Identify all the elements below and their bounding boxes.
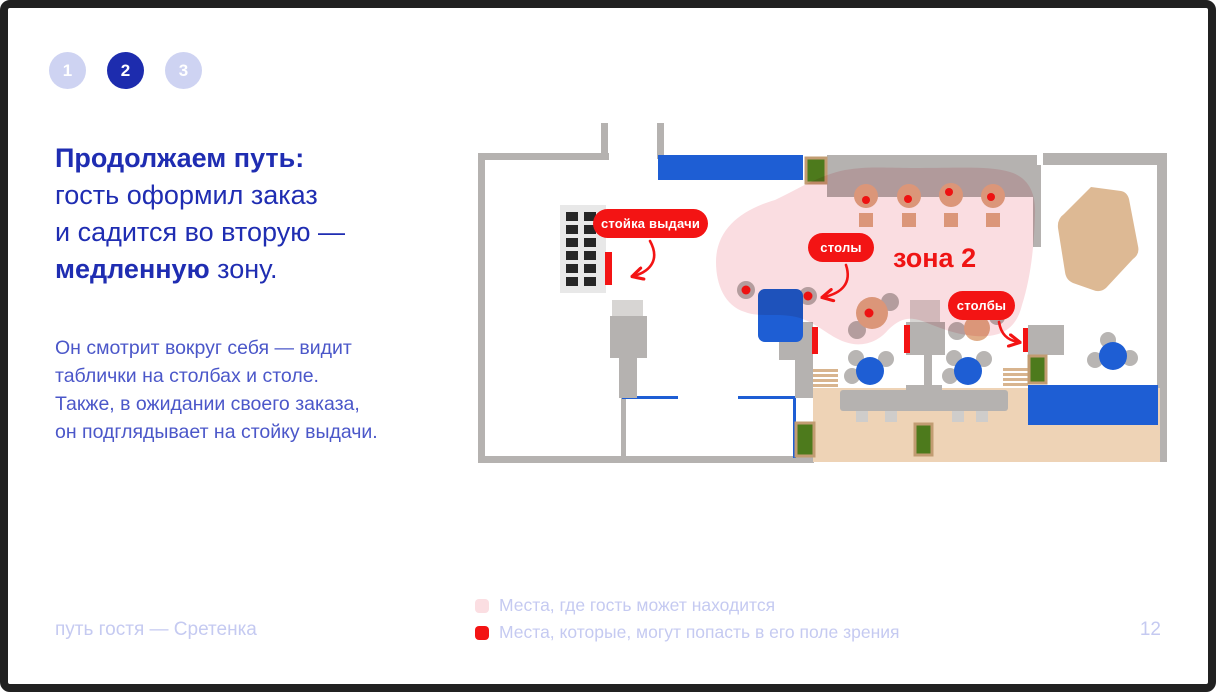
counter-top	[658, 155, 803, 180]
pickup-sign-marker	[605, 252, 612, 285]
legend-text-guest-area: Места, где гость может находится	[499, 595, 775, 616]
round-table	[844, 350, 894, 385]
door-thresholds	[622, 396, 796, 458]
legend-text-sightline: Места, которые, могут попасть в его поле…	[499, 622, 900, 643]
headline-line4-rest: зону.	[210, 254, 278, 284]
floor-plan	[455, 110, 1175, 475]
body-line3: Также, в ожидании своего заказа,	[55, 393, 360, 415]
step-indicator: 1 2 3	[49, 52, 202, 89]
headline-line2: гость оформил заказ	[55, 180, 318, 210]
wood-feature	[1058, 187, 1139, 291]
utility-sign-marker	[812, 327, 818, 354]
body-line4: он подглядывает на стойку выдачи.	[55, 421, 378, 443]
footer-project-title: путь гостя — Сретенка	[55, 619, 257, 641]
step-3[interactable]: 3	[165, 52, 202, 89]
legend-row-sightline: Места, которые, могут попасть в его поле…	[475, 619, 900, 646]
page-number: 12	[1140, 619, 1161, 641]
wall-door-jamb-left	[601, 123, 608, 157]
wall-door-jamb-right	[657, 123, 664, 159]
legend-row-guest-area: Места, где гость может находится	[475, 592, 900, 619]
wall-top-left	[478, 153, 609, 160]
round-table	[942, 350, 992, 385]
zone-2-label: зона 2	[893, 243, 976, 274]
step-1[interactable]: 1	[49, 52, 86, 89]
step-2[interactable]: 2	[107, 52, 144, 89]
wall-left	[478, 153, 485, 463]
red-swatch-icon	[475, 626, 489, 640]
legend: Места, где гость может находится Места, …	[475, 592, 900, 646]
callout-pickup-counter: стойка выдачи	[593, 209, 708, 238]
headline-bold-word: медленную	[55, 254, 210, 284]
headline: Продолжаем путь: гость оформил заказ и с…	[55, 140, 345, 288]
bench-seat-right	[1028, 385, 1158, 425]
body-paragraph: Он смотрит вокруг себя — видит таблички …	[55, 334, 378, 446]
service-column	[610, 300, 647, 398]
wall-bottom	[478, 456, 814, 463]
stairs-right	[1003, 368, 1028, 386]
pillar-sign-marker	[1023, 328, 1028, 352]
wall-top-right	[1043, 153, 1167, 165]
wall-inner-divider	[621, 398, 626, 456]
headline-intro: Продолжаем путь:	[55, 143, 304, 173]
callout-tables: столы	[808, 233, 874, 262]
body-line2: таблички на столбах и столе.	[55, 365, 319, 387]
stairs-left	[813, 369, 838, 387]
pink-swatch-icon	[475, 599, 489, 613]
pillar-b	[1023, 325, 1064, 355]
round-table	[1087, 332, 1138, 370]
callout-pillars: столбы	[948, 291, 1015, 320]
body-line1: Он смотрит вокруг себя — видит	[55, 337, 352, 359]
headline-line3: и садится во вторую —	[55, 217, 345, 247]
pillar-sign-marker	[904, 325, 910, 353]
arrow-pickup	[634, 241, 654, 276]
